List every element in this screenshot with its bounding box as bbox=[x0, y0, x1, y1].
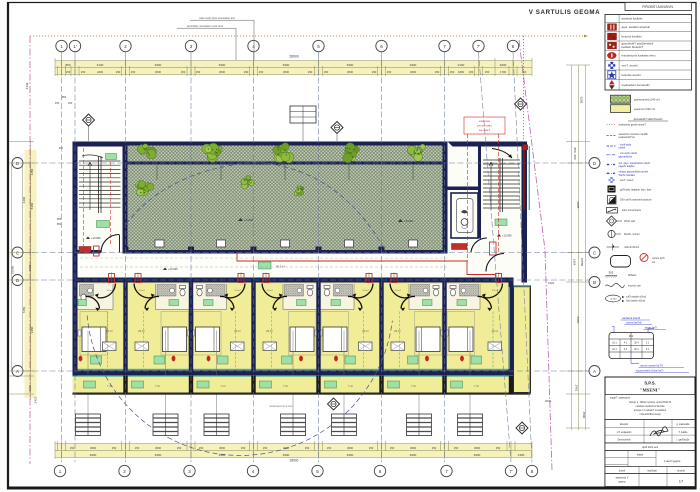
svg-text:150: 150 bbox=[66, 70, 71, 74]
svg-text:150: 150 bbox=[177, 446, 182, 450]
svg-text:150: 150 bbox=[135, 446, 140, 450]
svg-text:555: 555 bbox=[609, 271, 614, 275]
svg-text:150: 150 bbox=[432, 446, 437, 450]
svg-text:"MSENI": "MSENI" bbox=[640, 388, 661, 393]
svg-text:7 m²: 7 m² bbox=[348, 385, 353, 388]
svg-text:1': 1' bbox=[73, 44, 77, 49]
svg-text:case study plan annotation tex: case study plan annotation text bbox=[199, 16, 235, 20]
svg-text:2000: 2000 bbox=[500, 63, 507, 67]
svg-text:650: 650 bbox=[57, 222, 62, 226]
svg-text:venT. arxebi: venT. arxebi bbox=[622, 64, 639, 68]
svg-text:4: 4 bbox=[252, 469, 255, 474]
svg-text:landscaped area note: landscaped area note bbox=[270, 405, 294, 408]
svg-text:28900: 28900 bbox=[289, 55, 299, 59]
svg-text:nagebi adgilze: nagebi adgilze bbox=[619, 165, 636, 168]
svg-text:3350: 3350 bbox=[30, 326, 34, 333]
svg-text:150: 150 bbox=[244, 70, 249, 74]
svg-text:3600: 3600 bbox=[90, 446, 96, 450]
svg-text:150: 150 bbox=[450, 70, 455, 74]
svg-text:PIROBITI AGNISVN.: PIROBITI AGNISVN. bbox=[642, 5, 674, 9]
svg-text:3600: 3600 bbox=[474, 446, 480, 450]
svg-text:7 m²: 7 m² bbox=[474, 385, 479, 388]
svg-text:Semsrulebeli: Semsrulebeli bbox=[617, 439, 631, 442]
svg-text:venT. cxauri: venT. cxauri bbox=[620, 179, 634, 182]
svg-text:6: 6 bbox=[380, 44, 383, 49]
svg-text:+13.090: +13.090 bbox=[502, 234, 512, 238]
svg-text:1300: 1300 bbox=[518, 453, 525, 457]
svg-text:proeqti 1:1 variantiT mravalbi: proeqti 1:1 variantiT mravalbina bbox=[634, 409, 667, 412]
svg-text:150: 150 bbox=[241, 446, 246, 450]
svg-text:furceli: furceli bbox=[619, 469, 626, 472]
svg-text:masStabi: masStabi bbox=[647, 469, 657, 472]
svg-text:150: 150 bbox=[305, 446, 310, 450]
svg-text:3.8 m²: 3.8 m² bbox=[234, 289, 240, 292]
svg-text:26 m²: 26 m² bbox=[394, 330, 401, 333]
svg-text:3600: 3600 bbox=[410, 446, 416, 450]
svg-text:+5.000: +5.000 bbox=[404, 219, 414, 223]
svg-text:nomris farTobi: nomris farTobi bbox=[626, 322, 642, 325]
svg-text:7250: 7250 bbox=[22, 306, 26, 313]
svg-text:5205: 5205 bbox=[576, 202, 580, 209]
svg-text:3: 3 bbox=[188, 469, 191, 474]
svg-text:karis konstruqcia: karis konstruqcia bbox=[622, 209, 641, 212]
svg-text:150: 150 bbox=[390, 446, 395, 450]
svg-text:200: 200 bbox=[573, 154, 577, 159]
svg-text:evac route: evac route bbox=[479, 120, 491, 123]
svg-text:nomris nomeri farTiT: nomris nomeri farTiT bbox=[640, 365, 663, 368]
svg-text:8: 8 bbox=[531, 469, 534, 474]
svg-text:3900: 3900 bbox=[410, 453, 417, 457]
svg-text:sul: sul bbox=[652, 261, 656, 264]
svg-text:26 m²: 26 m² bbox=[234, 330, 241, 333]
svg-text:7 m²: 7 m² bbox=[155, 385, 160, 388]
svg-text:150: 150 bbox=[308, 70, 313, 74]
svg-text:38.2 m²: 38.2 m² bbox=[276, 265, 285, 269]
svg-text:1700: 1700 bbox=[500, 70, 506, 74]
svg-text:4: 4 bbox=[252, 44, 255, 49]
svg-text:saqarT. arqiteqtura: saqarT. arqiteqtura bbox=[610, 397, 631, 400]
svg-text:26 m²: 26 m² bbox=[106, 330, 113, 333]
svg-text:150: 150 bbox=[469, 70, 474, 74]
svg-text:gegma: gegma bbox=[618, 482, 626, 484]
svg-text:gayvaniloba: gayvaniloba bbox=[619, 155, 633, 158]
svg-text:7: 7 bbox=[445, 469, 448, 474]
svg-text:kvamlis arxebi: kvamlis arxebi bbox=[622, 73, 641, 77]
svg-text:7 m²: 7 m² bbox=[411, 385, 416, 388]
svg-text:3: 3 bbox=[190, 44, 193, 49]
svg-text:7 m²: 7 m² bbox=[283, 385, 288, 388]
svg-text:per level plan: per level plan bbox=[477, 125, 492, 128]
svg-text:150: 150 bbox=[70, 446, 75, 450]
svg-text:2: 2 bbox=[123, 469, 126, 474]
svg-text:150: 150 bbox=[324, 70, 329, 74]
svg-text:150: 150 bbox=[196, 70, 201, 74]
svg-text:1: 1 bbox=[60, 44, 63, 49]
svg-text:agur. kedlebi arsebuli: agur. kedlebi arsebuli bbox=[622, 25, 651, 29]
svg-text:WiSkari: WiSkari bbox=[628, 274, 637, 277]
svg-text:2900: 2900 bbox=[410, 63, 417, 67]
svg-text:3600: 3600 bbox=[283, 70, 289, 74]
svg-text:B: B bbox=[16, 278, 19, 283]
svg-text:4449: 4449 bbox=[25, 82, 29, 89]
svg-text:900: 900 bbox=[57, 217, 62, 221]
svg-text:15550: 15550 bbox=[580, 258, 584, 267]
svg-text:+13.090: +13.090 bbox=[91, 236, 101, 240]
svg-text:26 m²: 26 m² bbox=[138, 330, 145, 333]
svg-text:evakuaciis gzebi mimarT.: evakuaciis gzebi mimarT. bbox=[619, 123, 647, 126]
svg-text:3900: 3900 bbox=[283, 63, 290, 67]
svg-text:1800: 1800 bbox=[458, 70, 464, 74]
svg-text:see note 5: see note 5 bbox=[479, 129, 491, 132]
svg-text:V SARTULIS GEGMA: V SARTULIS GEGMA bbox=[529, 9, 600, 16]
svg-text:1 saerTo gegma: 1 saerTo gegma bbox=[664, 460, 681, 463]
svg-text:150: 150 bbox=[387, 70, 392, 74]
svg-text:+5.000: +5.000 bbox=[244, 218, 254, 222]
svg-text:rkinabetonis karkasis elem.: rkinabetonis karkasis elem. bbox=[622, 54, 657, 58]
svg-text:26 m²: 26 m² bbox=[362, 330, 369, 333]
svg-text:2949: 2949 bbox=[545, 399, 552, 403]
svg-text:Savi iatakis niSnuli: Savi iatakis niSnuli bbox=[626, 300, 646, 303]
svg-text:3.8 m²: 3.8 m² bbox=[106, 289, 112, 292]
svg-text:3900: 3900 bbox=[283, 453, 290, 457]
svg-text:3.8 m²: 3.8 m² bbox=[138, 289, 144, 292]
svg-text:3600: 3600 bbox=[155, 70, 161, 74]
svg-text:Wrilis xazi: Wrilis xazi bbox=[624, 220, 636, 223]
svg-text:7': 7' bbox=[509, 469, 513, 474]
svg-text:150: 150 bbox=[259, 70, 264, 74]
svg-text:150: 150 bbox=[68, 101, 73, 105]
svg-text:3600: 3600 bbox=[347, 446, 353, 450]
svg-text:3900: 3900 bbox=[219, 63, 226, 67]
svg-text:mSeneblobis proeqti: mSeneblobis proeqti bbox=[640, 413, 661, 416]
svg-text:kedlebi blokebiT: kedlebi blokebiT bbox=[622, 45, 644, 49]
svg-text:damatebiTi aRniSvnebi: damatebiTi aRniSvnebi bbox=[634, 117, 663, 121]
svg-text:150: 150 bbox=[55, 101, 60, 105]
svg-text:betonis kedlebi: betonis kedlebi bbox=[622, 34, 642, 38]
svg-text:RerZis nomeri: RerZis nomeri bbox=[624, 233, 640, 236]
svg-text:6: 6 bbox=[379, 469, 382, 474]
svg-text:950: 950 bbox=[62, 95, 67, 99]
svg-text:150: 150 bbox=[81, 70, 86, 74]
svg-text:15550: 15550 bbox=[11, 265, 15, 274]
svg-text:2600: 2600 bbox=[410, 70, 416, 74]
svg-text:3.8 m²: 3.8 m² bbox=[362, 289, 368, 292]
svg-text:150: 150 bbox=[116, 70, 121, 74]
svg-text:1: 1 bbox=[59, 469, 62, 474]
svg-text:sacxovrebeli oTaxis farTi: sacxovrebeli oTaxis farTi bbox=[636, 370, 664, 373]
svg-text:WerSi malulad: WerSi malulad bbox=[619, 174, 636, 177]
svg-text:150: 150 bbox=[199, 446, 204, 450]
svg-text:5350: 5350 bbox=[30, 202, 34, 209]
svg-text:850: 850 bbox=[65, 63, 70, 67]
svg-text:1324: 1324 bbox=[548, 281, 555, 285]
svg-text:2100: 2100 bbox=[458, 63, 465, 67]
svg-text:sufTa iatakis niSnuli: sufTa iatakis niSnuli bbox=[626, 296, 647, 299]
svg-text:150: 150 bbox=[435, 70, 440, 74]
svg-text:7': 7' bbox=[477, 44, 481, 49]
svg-text:3900: 3900 bbox=[347, 453, 354, 457]
svg-text:+13.090: +13.090 bbox=[168, 267, 178, 271]
svg-text:20.4: 20.4 bbox=[634, 343, 639, 345]
svg-text:150: 150 bbox=[327, 446, 332, 450]
svg-text:3.8 m²: 3.8 m² bbox=[266, 289, 272, 292]
svg-text:150: 150 bbox=[485, 70, 490, 74]
svg-text:3.8 m²: 3.8 m² bbox=[394, 289, 400, 292]
svg-text:mdebare sastumros Senoba: mdebare sastumros Senoba bbox=[636, 405, 666, 408]
svg-text:28900: 28900 bbox=[290, 459, 299, 463]
svg-text:niSnuli zRvris: niSnuli zRvris bbox=[624, 246, 640, 249]
svg-text:150: 150 bbox=[454, 446, 459, 450]
svg-text:4500: 4500 bbox=[582, 412, 586, 419]
svg-text:301: 301 bbox=[629, 334, 634, 338]
svg-text:6295: 6295 bbox=[580, 97, 584, 104]
svg-text:5: 5 bbox=[316, 469, 319, 474]
svg-text:sanitaruli kvanZi: sanitaruli kvanZi bbox=[622, 317, 641, 320]
svg-text:g. maisuraZe: g. maisuraZe bbox=[676, 423, 690, 426]
svg-text:3600: 3600 bbox=[347, 70, 353, 74]
svg-text:20.4: 20.4 bbox=[634, 349, 639, 351]
svg-text:2: 2 bbox=[124, 44, 127, 49]
svg-text:3100: 3100 bbox=[97, 63, 104, 67]
svg-text:secondary annotation note here: secondary annotation note here bbox=[187, 24, 224, 28]
svg-text:26 m²: 26 m² bbox=[266, 330, 273, 333]
svg-text:5: 5 bbox=[317, 44, 320, 49]
svg-text:aivnis farTi: aivnis farTi bbox=[645, 327, 657, 330]
svg-text:S.P.S.: S.P.S. bbox=[644, 381, 655, 386]
svg-text:gaTbobis radiatori sam. tipis: gaTbobis radiatori sam. tipis bbox=[620, 189, 652, 192]
svg-text:evakuaciisTvis: evakuaciisTvis bbox=[619, 136, 636, 139]
svg-text:arsebuli kedlebi: arsebuli kedlebi bbox=[622, 17, 643, 21]
svg-text:2400: 2400 bbox=[97, 70, 103, 74]
svg-text:3600: 3600 bbox=[219, 446, 225, 450]
svg-text:150: 150 bbox=[369, 446, 374, 450]
svg-text:150: 150 bbox=[496, 446, 501, 450]
svg-text:16.1: 16.1 bbox=[612, 349, 617, 351]
svg-text:1424: 1424 bbox=[573, 259, 577, 266]
svg-text:7 m²: 7 m² bbox=[221, 385, 226, 388]
svg-text:furclebi: furclebi bbox=[677, 469, 685, 472]
svg-text:SSm pirTa asasvleli pandusi: SSm pirTa asasvleli pandusi bbox=[620, 199, 652, 202]
svg-text:17: 17 bbox=[679, 479, 684, 484]
svg-text:150: 150 bbox=[181, 70, 186, 74]
svg-text:950: 950 bbox=[573, 147, 577, 152]
svg-text:sastumro (536 m²): sastumro (536 m²) bbox=[634, 107, 655, 111]
svg-text:150: 150 bbox=[263, 446, 268, 450]
svg-text:milebi: milebi bbox=[619, 147, 626, 150]
svg-text:wyalsadeni da kanaliz.: wyalsadeni da kanaliz. bbox=[622, 83, 651, 87]
svg-text:+0.450: +0.450 bbox=[610, 299, 618, 301]
svg-text:i. qavTaraZe: i. qavTaraZe bbox=[677, 439, 690, 442]
svg-text:sastumros V: sastumros V bbox=[616, 477, 629, 480]
svg-text:16.1: 16.1 bbox=[612, 343, 617, 345]
svg-text:2401: 2401 bbox=[575, 385, 579, 392]
svg-text:3600: 3600 bbox=[219, 70, 225, 74]
svg-text:7: 7 bbox=[443, 44, 446, 49]
svg-text:direqtori: direqtori bbox=[620, 423, 629, 426]
svg-text:150: 150 bbox=[372, 70, 377, 74]
svg-text:3900: 3900 bbox=[155, 453, 162, 457]
svg-text:150: 150 bbox=[131, 70, 136, 74]
svg-text:2900: 2900 bbox=[155, 63, 162, 67]
svg-text:26 m²: 26 m² bbox=[492, 330, 499, 333]
svg-text:stadia: stadia bbox=[637, 454, 644, 457]
svg-text:5203: 5203 bbox=[576, 317, 580, 324]
svg-text:3600: 3600 bbox=[155, 446, 161, 450]
svg-text:3900: 3900 bbox=[90, 453, 97, 457]
svg-text:wyvetis xazi: wyvetis xazi bbox=[628, 285, 641, 288]
svg-text:1450: 1450 bbox=[30, 168, 34, 175]
svg-text:nomris farTi: nomris farTi bbox=[652, 257, 665, 260]
svg-text:3900: 3900 bbox=[474, 453, 481, 457]
svg-text:150: 150 bbox=[112, 446, 117, 450]
svg-text:obieqti: q. Tbilisis municip.: obieqti: q. Tbilisis municip. quCa NN22-… bbox=[629, 401, 672, 404]
svg-text:aprili 2021 weli: aprili 2021 weli bbox=[642, 446, 658, 449]
svg-text:4400: 4400 bbox=[22, 196, 26, 203]
svg-text:T. featZe: T. featZe bbox=[679, 431, 689, 434]
svg-text:gamwvaneba (240 m²): gamwvaneba (240 m²) bbox=[634, 98, 660, 102]
svg-text:2421: 2421 bbox=[34, 396, 38, 403]
svg-text:mT. arqiteqtori: mT. arqiteqtori bbox=[617, 431, 632, 434]
svg-text:3900: 3900 bbox=[347, 63, 354, 67]
svg-text:B: B bbox=[593, 280, 596, 285]
svg-text:8: 8 bbox=[512, 44, 515, 49]
